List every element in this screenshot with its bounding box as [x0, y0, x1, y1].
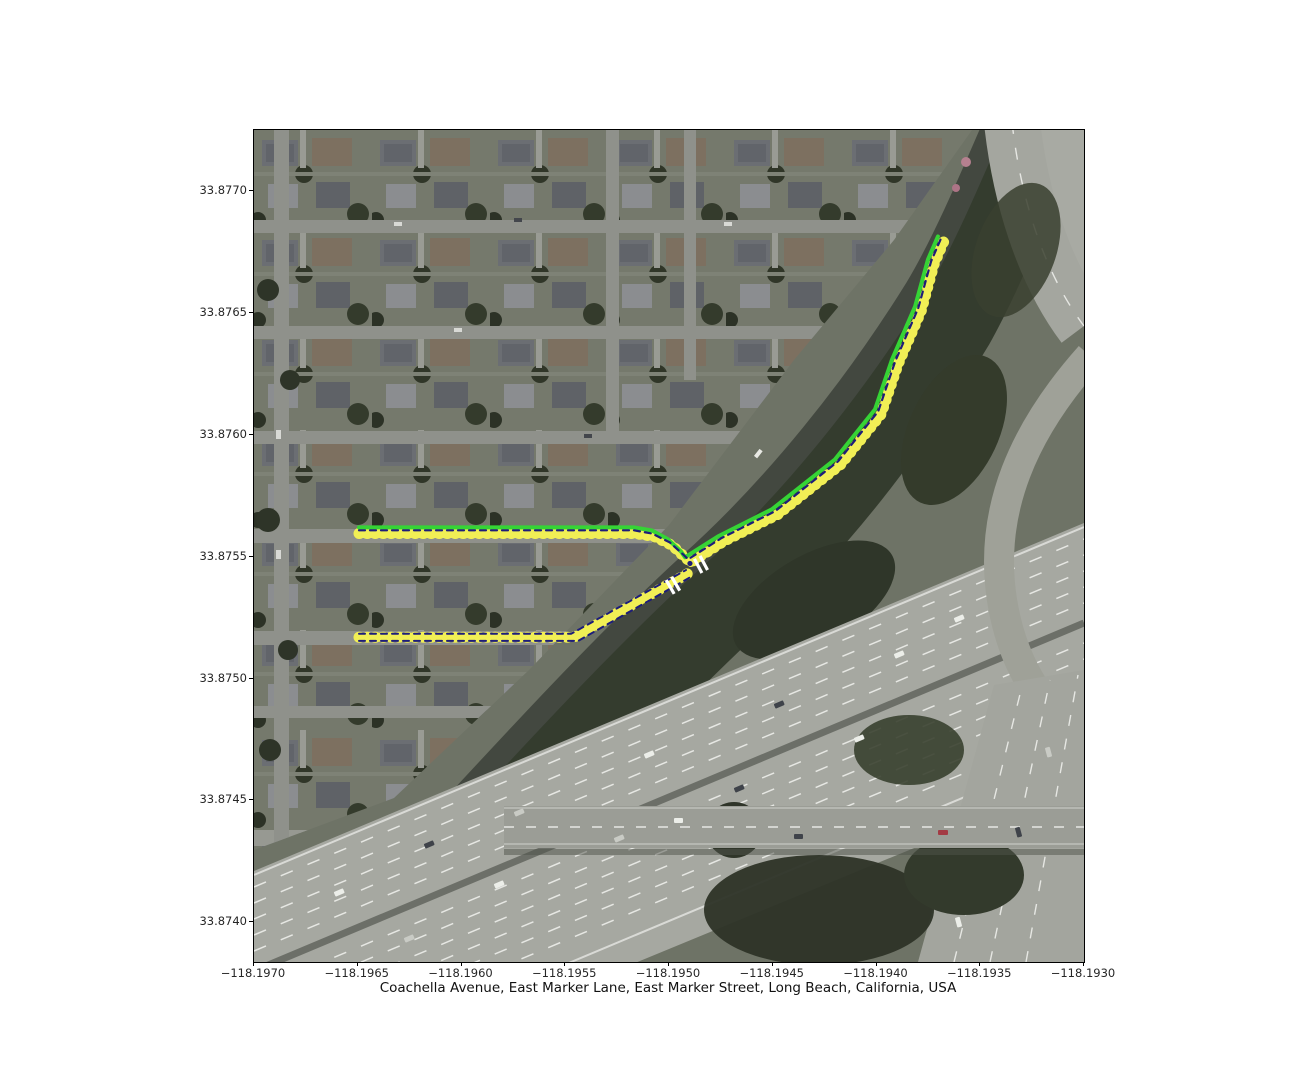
y-tick-label: 33.8765 [175, 306, 247, 318]
x-tick-mark [253, 962, 254, 966]
y-tick-label: 33.8745 [175, 793, 247, 805]
y-tick-mark [249, 190, 253, 191]
x-tick-mark [564, 962, 565, 966]
x-tick-label: −118.1930 [1043, 967, 1123, 979]
x-tick-label: −118.1970 [213, 967, 293, 979]
x-tick-mark [461, 962, 462, 966]
x-tick-label: −118.1940 [836, 967, 916, 979]
y-tick-label: 33.8750 [175, 672, 247, 684]
x-tick-mark [772, 962, 773, 966]
x-tick-label: −118.1945 [732, 967, 812, 979]
route-yellow-south [359, 573, 688, 637]
x-tick-label: −118.1960 [421, 967, 501, 979]
y-tick-label: 33.8740 [175, 915, 247, 927]
y-tick-mark [249, 556, 253, 557]
x-tick-label: −118.1935 [939, 967, 1019, 979]
y-tick-mark [249, 678, 253, 679]
x-tick-mark [876, 962, 877, 966]
figure: 33.877033.876533.876033.875533.875033.87… [0, 0, 1300, 1080]
x-tick-mark [979, 962, 980, 966]
x-tick-mark [357, 962, 358, 966]
map-caption: Coachella Avenue, East Marker Lane, East… [253, 980, 1083, 996]
route-green [359, 237, 938, 558]
y-tick-mark [249, 921, 253, 922]
y-tick-mark [249, 799, 253, 800]
x-tick-label: −118.1950 [628, 967, 708, 979]
y-tick-label: 33.8760 [175, 428, 247, 440]
route-overlay [254, 130, 1084, 962]
route-navy-main-center [359, 238, 941, 559]
route-yellow-main [359, 241, 944, 562]
x-tick-mark [1083, 962, 1084, 966]
x-tick-label: −118.1955 [524, 967, 604, 979]
junction-node-dot [687, 561, 692, 566]
x-tick-label: −118.1965 [317, 967, 397, 979]
y-tick-mark [249, 434, 253, 435]
y-tick-label: 33.8770 [175, 184, 247, 196]
y-tick-mark [249, 312, 253, 313]
route-yellow-main-dots [359, 241, 944, 562]
y-tick-label: 33.8755 [175, 550, 247, 562]
route-navy-south-south-edge [359, 577, 691, 641]
x-tick-mark [668, 962, 669, 966]
map-plot [253, 129, 1085, 963]
